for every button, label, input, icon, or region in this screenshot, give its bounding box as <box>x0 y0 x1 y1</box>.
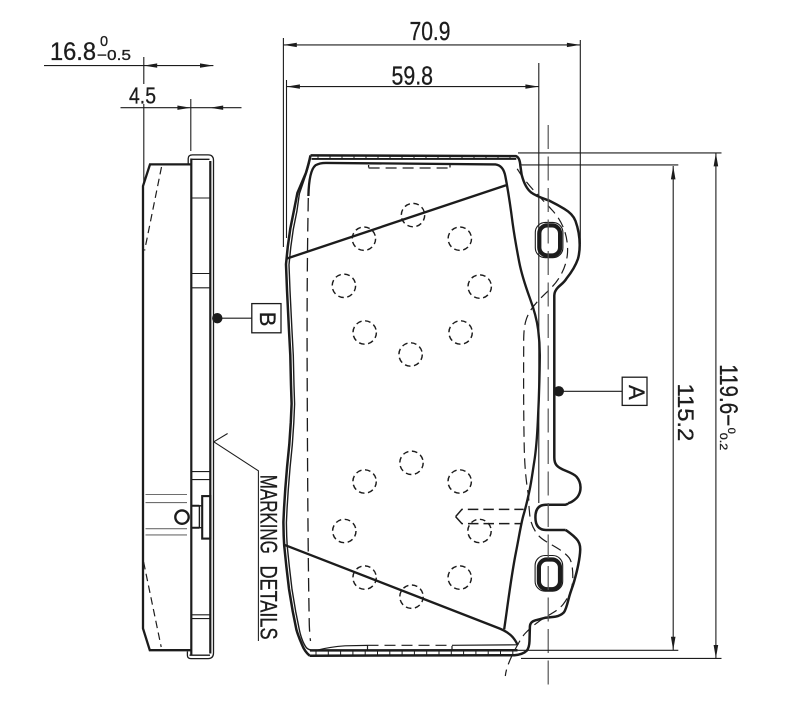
svg-text:−0.5: −0.5 <box>97 48 131 64</box>
svg-text:16.8: 16.8 <box>50 38 96 66</box>
svg-text:MARKING: MARKING <box>255 475 282 554</box>
svg-text:0.2: 0.2 <box>717 433 729 451</box>
svg-text:DETAILS: DETAILS <box>255 566 282 640</box>
svg-text:4.5: 4.5 <box>129 83 156 109</box>
svg-text:B: B <box>255 312 280 327</box>
svg-text:0: 0 <box>100 34 108 50</box>
svg-text:115.2: 115.2 <box>673 384 698 442</box>
svg-text:119.6−: 119.6− <box>714 364 742 426</box>
svg-text:A: A <box>624 385 649 400</box>
svg-text:59.8: 59.8 <box>392 61 434 91</box>
svg-text:70.9: 70.9 <box>410 16 451 46</box>
